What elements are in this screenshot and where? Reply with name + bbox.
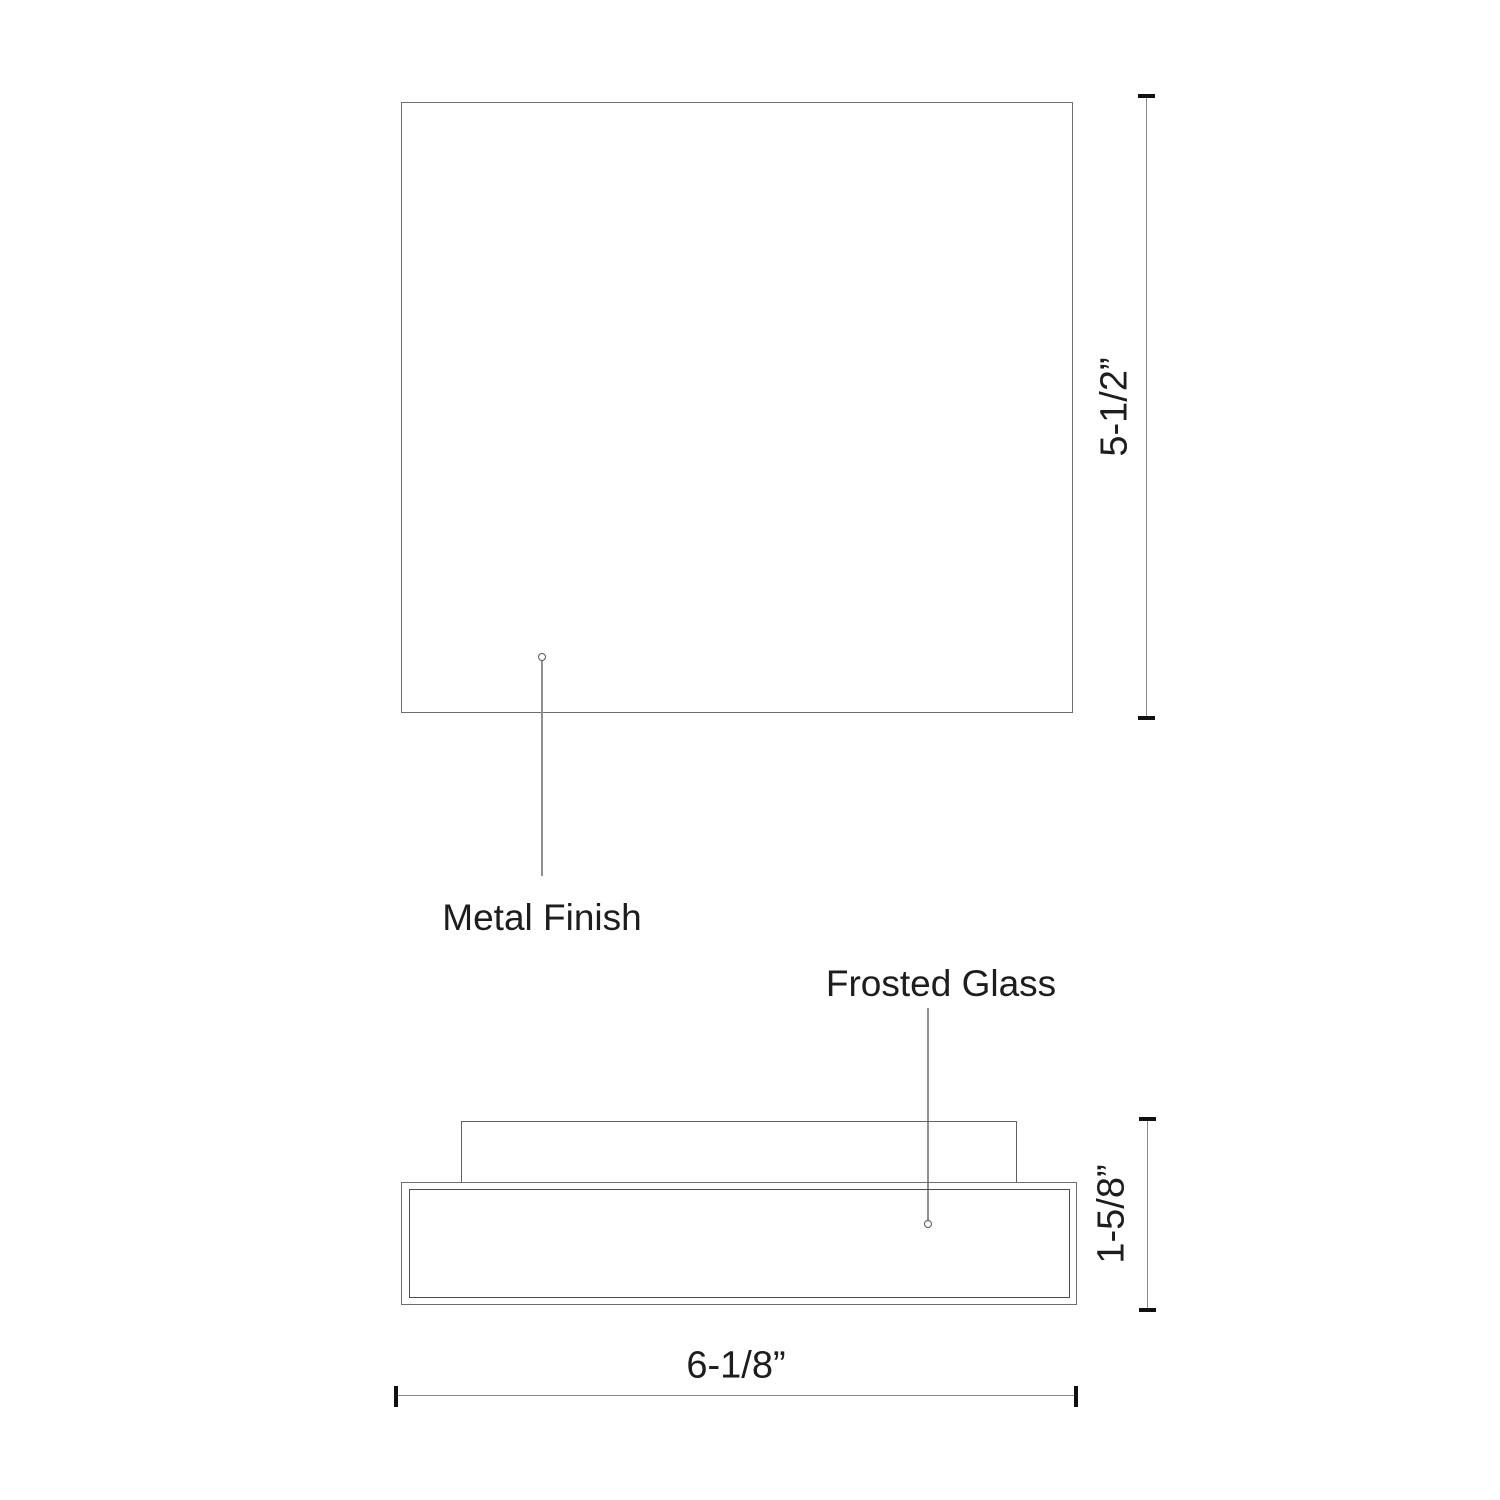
depth-dimension-top-tick: [1139, 1117, 1156, 1121]
width-dimension-right-tick: [1074, 1386, 1078, 1407]
top-view-outline: [401, 102, 1073, 713]
side-view-glass-outline: [409, 1189, 1070, 1298]
height-dimension-bottom-tick: [1138, 716, 1155, 720]
width-dimension-left-tick: [394, 1386, 398, 1407]
width-dimension-label: 6-1/8”: [686, 1345, 785, 1388]
height-dimension-line: [1146, 96, 1147, 718]
technical-drawing-canvas: Metal Finish Frosted Glass 5-1/2” 1-5/8”…: [0, 0, 1500, 1500]
metal-finish-callout-dot: [538, 653, 546, 661]
side-view-backplate-outline: [461, 1121, 1017, 1182]
height-dimension-label: 5-1/2”: [1094, 357, 1137, 456]
metal-finish-leader-line: [541, 661, 543, 876]
height-dimension-top-tick: [1138, 94, 1155, 98]
frosted-glass-label: Frosted Glass: [826, 963, 1056, 1005]
metal-finish-label: Metal Finish: [442, 897, 641, 939]
depth-dimension-line: [1147, 1119, 1148, 1310]
depth-dimension-label: 1-5/8”: [1091, 1164, 1134, 1263]
depth-dimension-bottom-tick: [1139, 1308, 1156, 1312]
width-dimension-line: [396, 1395, 1076, 1396]
